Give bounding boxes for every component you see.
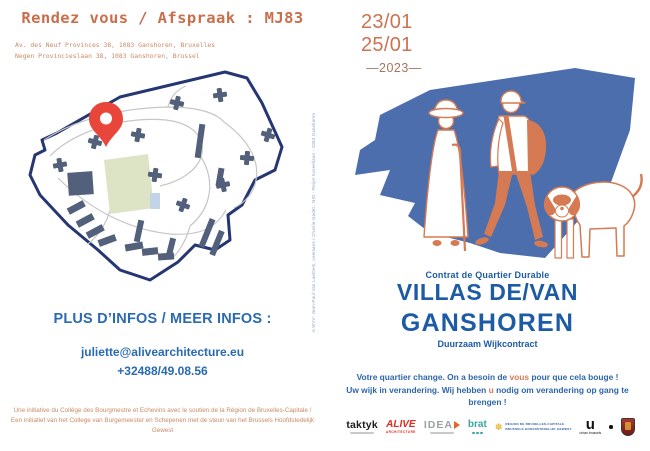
logo-urban-brussels: u urban.brussels — [580, 419, 602, 435]
dog-figure — [544, 174, 642, 258]
logo-alive-architecture: ALIVE ARCHITECTURE — [386, 420, 416, 435]
photo-credit-vertical: ©WVV: Jean-Paul Van Laethem, Leemans / C… — [311, 98, 316, 333]
brat-wordmark: brat — [468, 420, 487, 430]
idea-wordmark: IDEA — [424, 420, 453, 431]
urban-wordmark: u — [586, 419, 595, 431]
map-svg — [18, 60, 308, 282]
logo-idea-consult: IDEA — [424, 420, 460, 435]
map-pond — [150, 193, 160, 209]
initiative-credit: Une initiative du Collège des Bourgmestr… — [10, 406, 315, 436]
cta-line-nl: Uw wijk in verandering. Wij hebben u nod… — [330, 384, 645, 409]
alive-subtitle: ARCHITECTURE — [386, 431, 416, 434]
idea-tagline-bar — [430, 432, 454, 434]
call-to-action: Votre quartier change. On a besoin de vo… — [330, 371, 645, 409]
idea-play-icon — [454, 421, 460, 429]
address-block: Av. des Neuf Provinces 38, 1083 Ganshore… — [15, 40, 215, 61]
walkers-illustration — [338, 53, 650, 268]
ganshoren-crest-icon — [621, 418, 635, 436]
logo-taktyk: taktyk — [346, 420, 378, 435]
brat-dots-icon — [472, 432, 483, 435]
main-title-line2: GANSHOREN — [325, 310, 650, 338]
infos-heading: PLUS D’INFOS / MEER INFOS : — [0, 311, 325, 327]
cta-fr-pre: Votre quartier change. On a besoin de — [357, 372, 510, 382]
illustration-svg — [338, 53, 650, 268]
partner-logos-row: taktyk ALIVE ARCHITECTURE IDEA brat ✽ RÉ… — [338, 412, 643, 442]
region-name-nl: BRUSSELS HOOFDSTEDELIJK GEWEST — [505, 428, 571, 431]
flyer-page: Rendez vous / Afspraak : MJ83 Av. des Ne… — [0, 0, 650, 451]
alive-wordmark: ALIVE — [386, 420, 415, 430]
main-title-line1: VILLAS DE/VAN — [325, 280, 650, 305]
date-1: 23/01 — [361, 11, 422, 34]
taktyk-tagline-bar — [350, 432, 374, 434]
urban-subtitle: urban.brussels — [580, 432, 602, 435]
iris-flower-icon: ✽ — [495, 423, 503, 432]
logo-brussels-region: ✽ RÉGION DE BRUXELLES-CAPITALE BRUSSELS … — [495, 423, 572, 432]
program-label-nl: Duurzaam Wijkcontract — [325, 339, 650, 349]
contact-email: juliette@alivearchitecture.eu — [0, 345, 325, 359]
separator-dot — [609, 425, 613, 429]
cta-nl-pre: Uw wijk in verandering. Wij hebben — [346, 385, 488, 395]
neighborhood-map — [18, 60, 308, 284]
contact-phone: +32488/49.08.56 — [0, 364, 325, 378]
map-park-field — [104, 154, 154, 214]
taktyk-wordmark: taktyk — [346, 420, 378, 431]
cta-line-fr: Votre quartier change. On a besoin de vo… — [330, 371, 645, 384]
cta-fr-post: pour que cela bouge ! — [529, 372, 618, 382]
rendezvous-title: Rendez vous / Afspraak : MJ83 — [0, 9, 325, 27]
cta-fr-highlight: vous — [510, 372, 530, 382]
logo-brat: brat — [468, 420, 487, 434]
title-block: Contrat de Quartier Durable VILLAS DE/VA… — [325, 270, 650, 349]
address-fr: Av. des Neuf Provinces 38, 1083 Ganshore… — [15, 40, 215, 51]
